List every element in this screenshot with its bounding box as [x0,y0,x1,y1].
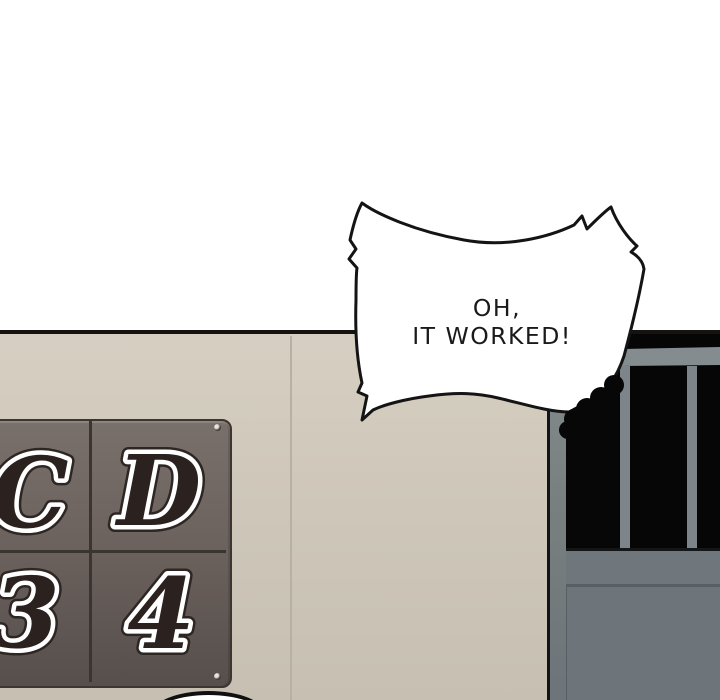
sign-grid-line-horizontal [0,550,226,553]
bubble-text-line1: OH, [473,294,521,322]
screw-icon [214,673,221,680]
cabinet-door-panel [567,587,720,700]
wall-seam [290,336,292,700]
screw-icon [214,424,221,431]
comic-panel: C C C D D D 3 3 3 4 4 4 OH, IT WORKED! [0,0,720,700]
window-mullion [620,366,630,548]
window-left-frame [550,334,566,700]
window-mullion [687,366,697,548]
sign-panel [0,419,232,688]
window-frame-outline [547,334,550,700]
